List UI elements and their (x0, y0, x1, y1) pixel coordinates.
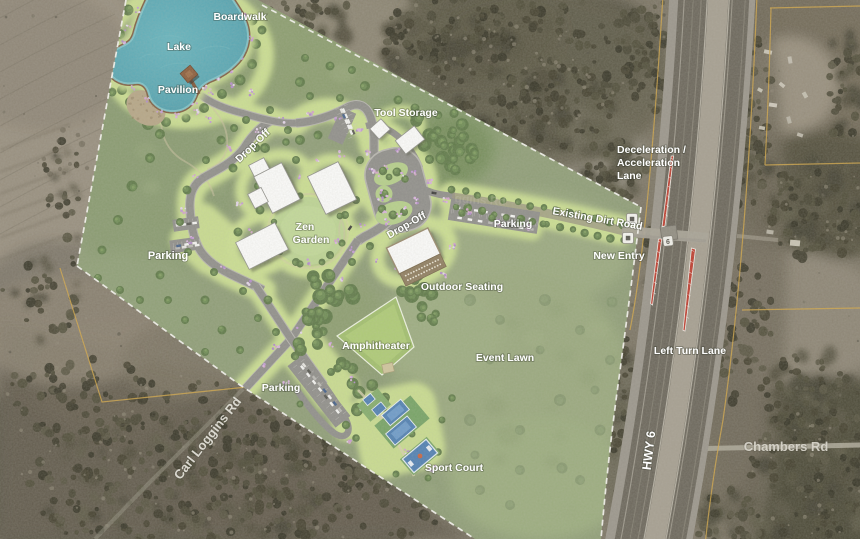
svg-text:Parking: Parking (148, 250, 188, 262)
svg-text:Zen: Zen (296, 221, 315, 233)
svg-text:Pavilion: Pavilion (158, 84, 198, 96)
svg-text:Acceleration: Acceleration (617, 157, 680, 169)
svg-text:Boardwalk: Boardwalk (213, 11, 266, 23)
svg-text:Amphitheater: Amphitheater (342, 340, 410, 352)
svg-text:Deceleration /: Deceleration / (617, 144, 686, 156)
svg-text:Parking: Parking (494, 218, 533, 230)
svg-text:Lake: Lake (167, 41, 191, 53)
svg-text:Event Lawn: Event Lawn (476, 352, 534, 364)
svg-text:Sport Court: Sport Court (425, 462, 484, 474)
svg-text:Parking: Parking (262, 382, 301, 394)
svg-text:Tool Storage: Tool Storage (374, 107, 438, 119)
svg-text:Garden: Garden (293, 234, 330, 246)
svg-text:Left Turn Lane: Left Turn Lane (654, 345, 726, 357)
svg-text:Outdoor Seating: Outdoor Seating (421, 281, 503, 293)
svg-text:Chambers Rd: Chambers Rd (744, 439, 829, 454)
svg-text:Lane: Lane (617, 170, 642, 182)
svg-text:New Entry: New Entry (593, 250, 645, 262)
